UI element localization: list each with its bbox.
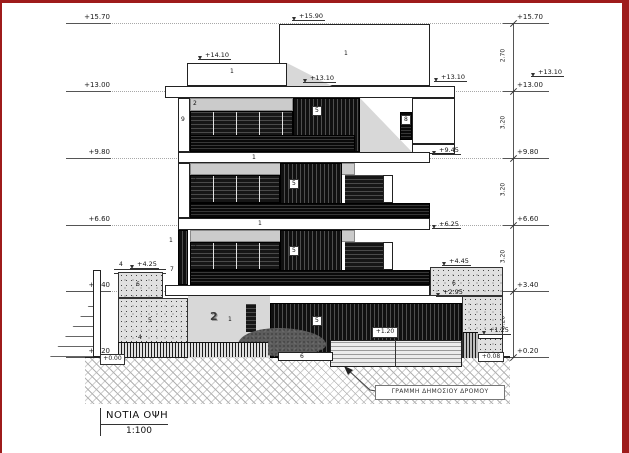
keynote-stone-left-a: 6 [136,281,140,288]
level-underline [503,91,549,92]
spot-level-garage-lintel: +1.20 [372,327,398,338]
window-band-3 [190,175,280,203]
left-pier-3 [178,163,190,218]
railing-top [190,135,355,152]
dim-text-320c: 3.20 [500,244,507,270]
window-band-top [190,111,293,137]
right-annex-wall [412,98,455,144]
right-window-frame-2 [383,242,393,270]
dim-text-320b: 3.20 [500,177,507,203]
right-window-3 [345,175,383,203]
level-label-right-020: +0.20 [517,347,561,355]
slab-980 [178,152,430,163]
keynote-col-2b: 7 [170,266,174,273]
keynote-chimney: 8 [401,115,411,125]
right-window-2 [345,242,383,270]
level-underline [503,23,549,24]
slab-340 [165,285,430,296]
level-underline [66,158,111,159]
spot-level-balcony-right: +6.25 [432,220,461,229]
level-label-right-980: +9.80 [517,148,561,156]
keynote-slat-2: 5 [289,246,299,256]
spot-level-entrance: +0.00 [100,354,125,365]
title-rule-horizontal [100,424,168,425]
right-window-frame-3 [383,175,393,203]
level-underline [66,225,111,226]
slab-660 [178,218,430,230]
keynote-slat-top: 5 [312,106,322,116]
level-label-right-340: +3.40 [517,281,561,289]
sheet-frame-left [0,0,2,453]
keynote-penthouse: 1 [344,50,348,57]
spot-level-annex-top: +13.10 [434,73,467,82]
railing-2 [190,270,430,285]
keynote-upper-roof: 1 [230,68,234,75]
spot-level-right-wall-top: +4.45 [442,257,471,266]
level-label-left-980: +9.80 [66,148,110,156]
garage-door [330,340,462,367]
stair-side-wall [93,270,101,357]
level-underline [66,91,111,92]
keynote-planter: 6 [300,353,304,360]
road-line-label: ΓΡΑΜΜΗ ΔΗΜΟΣΙΟΥ ΔΡΟΜΟΥ [375,385,505,400]
keynote-coping: 4 [119,261,123,268]
left-pier-top [178,98,190,152]
sheet-frame-right [622,0,629,453]
level-label-right-1300: +13.00 [517,81,561,89]
fence-right [463,332,478,358]
level-underline [66,291,111,292]
keynote-slab-660: 1 [258,220,262,227]
stone-wall-left-upper [118,272,163,298]
spot-level-roof-right: +13.10 [531,68,564,77]
title-rule-vertical [100,408,101,436]
dim-text-270: 2.70 [500,43,507,69]
spot-level-stair-landing: +9.45 [432,146,461,155]
spot-level-roof-slab: +13.10 [303,74,336,83]
spot-level-penthouse-top: +15.90 [292,12,325,21]
level-underline [66,23,111,24]
entrance-stairs [50,300,93,357]
keynote-stone-right: 6 [452,280,456,287]
stone-wall-left-lower [118,298,188,344]
keynote-stone-left-b: 5 [148,317,152,324]
level-label-right-1570: +15.70 [517,13,561,21]
spot-level-upper-roof: +14.10 [198,51,231,60]
drawing-title: ΝΟΤΙΑ ΟΨΗ [106,410,168,421]
level-label-left-660: +6.60 [66,215,110,223]
dimension-chain-line [513,23,514,357]
window-head-top [190,98,293,111]
elevation-drawing: +15.70 +13.00 +9.80 +6.60 +3.40 +0.20 +1… [0,0,629,453]
spot-level-right-wall-step: +2.95 [436,288,465,297]
sheet-frame-top [0,0,629,3]
dark-column-2 [178,230,188,285]
spot-level-right-wall-low: +1.25 [482,326,511,335]
keynote-stone-left-c: 4 [138,334,142,341]
level-label-left-1300: +13.00 [66,81,110,89]
drawing-scale: 1:100 [126,426,152,436]
window-band-2 [190,242,280,270]
level-label-right-660: +6.60 [517,215,561,223]
keynote-ground-wall: 1 [228,316,232,323]
level-label-left-1570: +15.70 [66,13,110,21]
ground-small-window [246,304,256,332]
upper-roof-block [187,63,287,86]
keynote-slat-ground: 5 [312,316,322,326]
roof-slab [165,86,455,98]
dim-text-320a: 3.20 [500,110,507,136]
level-label-left-340: +3.40 [66,281,110,289]
unit-number: 2 [210,310,218,323]
keynote-window-2: 2 [193,244,197,251]
garage-door-divider [395,340,396,367]
keynote-col-2a: 1 [169,237,173,244]
spot-level-right-ground: +0.08 [478,352,504,362]
keynote-pier-top: 9 [181,116,185,123]
keynote-slab-980: 1 [252,154,256,161]
level-underline [503,225,549,226]
fence-left [118,342,268,357]
keynote-window-top: 2 [193,100,197,107]
spot-level-left-wall-top: +4.25 [130,260,159,269]
keynote-window-3: 2 [193,177,197,184]
keynote-slat-3: 5 [289,179,299,189]
railing-3 [190,203,430,218]
planter-slab [278,352,333,361]
level-underline [503,158,549,159]
level-underline [503,291,549,292]
